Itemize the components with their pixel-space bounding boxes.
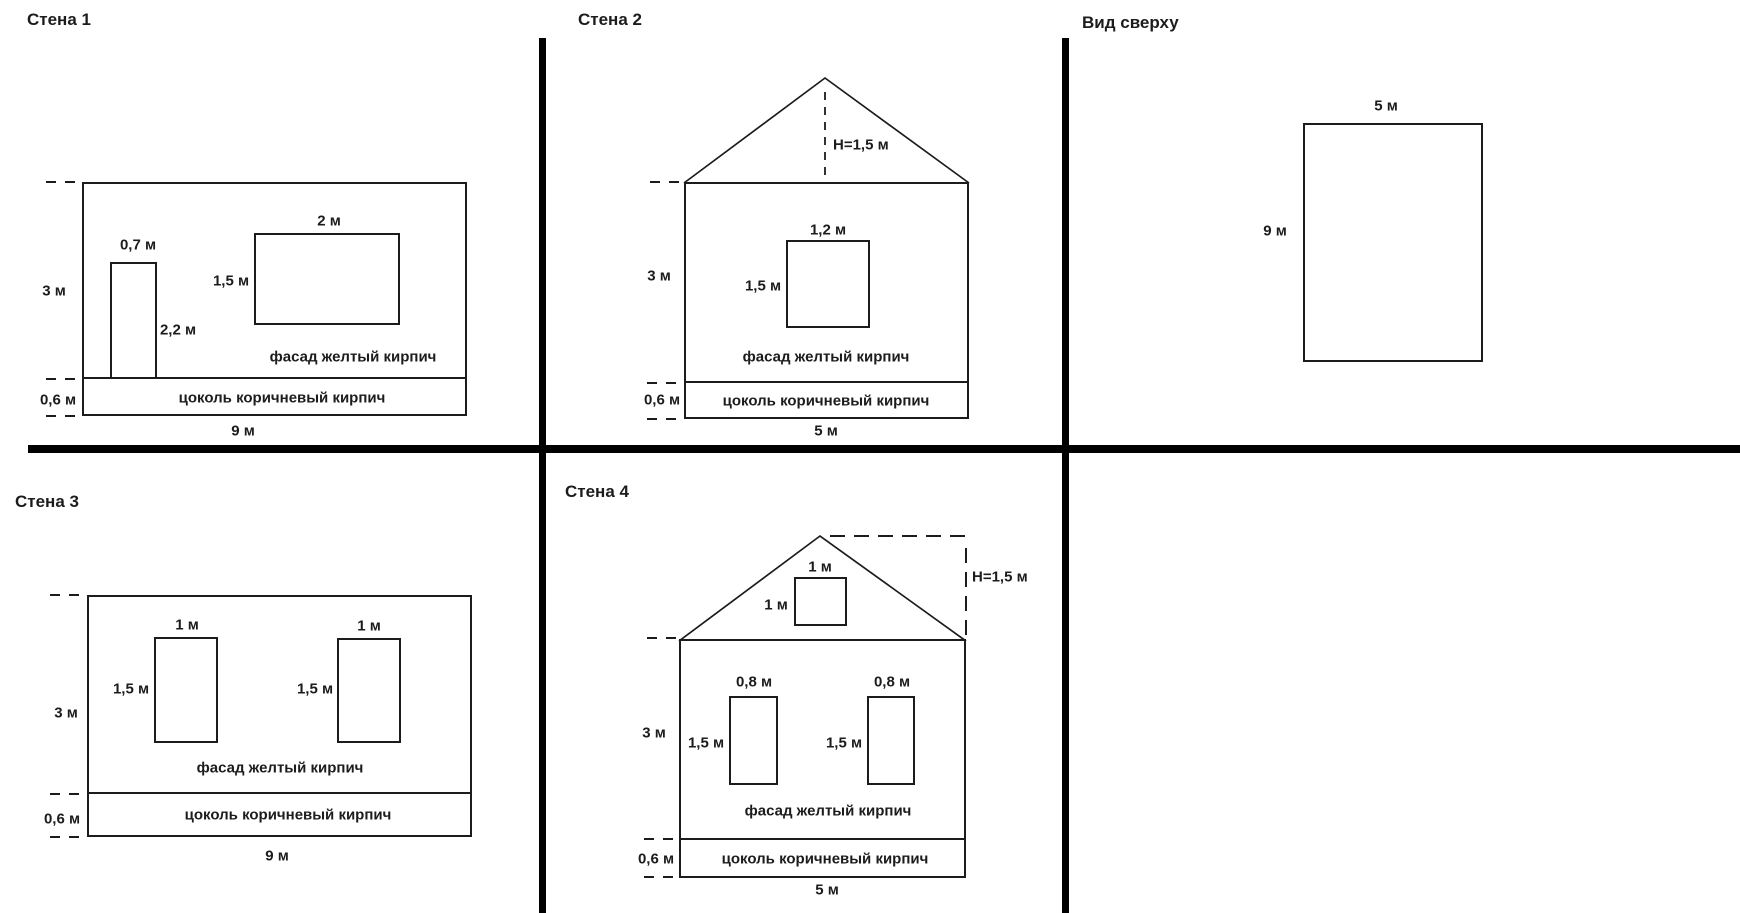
wall3-dim-window2-height: 1,5 м — [297, 682, 333, 697]
wall4-attic-window-rect — [794, 577, 847, 626]
drawing-canvas: Стена 1 3 м 0,7 м 2,2 м 2 м 1,5 м фасад … — [0, 0, 1740, 913]
wall2-facade-material-label: фасад желтый кирпич — [743, 350, 910, 365]
wall2-dim-plinth-height: 0,6 м — [644, 393, 680, 408]
wall3-dim-wall-width: 9 м — [265, 849, 289, 864]
wall3-title: Стена 3 — [15, 493, 79, 510]
wall4-window1-rect — [729, 696, 778, 785]
wall1-facade-material-label: фасад желтый кирпич — [270, 350, 437, 365]
wall2-dim-roof-height: Н=1,5 м — [833, 138, 889, 153]
wall2-dim-wall-height: 3 м — [647, 269, 671, 284]
wall4-title: Стена 4 — [565, 483, 629, 500]
wall1-dim-plinth-height: 0,6 м — [40, 393, 76, 408]
wall2-plinth-material-label: цоколь коричневый кирпич — [723, 394, 930, 409]
wall3-dim-wall-height: 3 м — [54, 706, 78, 721]
wall3-dim-window1-width: 1 м — [175, 618, 199, 633]
wall4-dim-window1-width: 0,8 м — [736, 675, 772, 690]
wall2-window-rect — [786, 240, 870, 328]
wall3-window2-rect — [337, 638, 401, 743]
wall4-dim-attic-window-height: 1 м — [764, 598, 788, 613]
wall2-dim-window-width: 1,2 м — [810, 223, 846, 238]
wall4-facade-material-label: фасад желтый кирпич — [745, 804, 912, 819]
wall4-plinth-material-label: цоколь коричневый кирпич — [722, 852, 929, 867]
wall1-dim-window-width: 2 м — [317, 214, 341, 229]
wall1-plinth-material-label: цоколь коричневый кирпич — [179, 391, 386, 406]
divider-vertical-2 — [1062, 38, 1069, 913]
wall1-door-rect — [110, 262, 157, 379]
wall1-dim-door-width: 0,7 м — [120, 238, 156, 253]
wall4-dim-roof-height: Н=1,5 м — [972, 570, 1028, 585]
wall4-window2-rect — [867, 696, 915, 785]
top-view-dim-width: 5 м — [1374, 99, 1398, 114]
wall3-dim-plinth-height: 0,6 м — [44, 812, 80, 827]
wall4-dim-window2-width: 0,8 м — [874, 675, 910, 690]
top-view-dim-depth: 9 м — [1263, 224, 1287, 239]
wall1-window-rect — [254, 233, 400, 325]
wall1-dim-wall-height: 3 м — [42, 284, 66, 299]
wall2-dim-window-height: 1,5 м — [745, 279, 781, 294]
divider-vertical-1 — [539, 38, 546, 913]
wall4-dim-window1-height: 1,5 м — [688, 736, 724, 751]
wall2-dim-wall-width: 5 м — [814, 424, 838, 439]
wall4-dim-plinth-height: 0,6 м — [638, 852, 674, 867]
wall1-title: Стена 1 — [27, 11, 91, 28]
wall1-dim-window-height: 1,5 м — [213, 274, 249, 289]
top-view-title: Вид сверху — [1082, 14, 1179, 31]
wall4-dim-wall-width: 5 м — [815, 883, 839, 898]
top-view-plan-rect — [1303, 123, 1483, 362]
wall4-dim-wall-height: 3 м — [642, 726, 666, 741]
wall3-dim-window1-height: 1,5 м — [113, 682, 149, 697]
wall4-dim-attic-window-width: 1 м — [808, 560, 832, 575]
wall1-dim-wall-width: 9 м — [231, 424, 255, 439]
divider-horizontal — [28, 445, 1740, 453]
wall2-title: Стена 2 — [578, 11, 642, 28]
wall1-dim-door-height: 2,2 м — [160, 323, 196, 338]
wall3-plinth-material-label: цоколь коричневый кирпич — [185, 808, 392, 823]
wall2-roof-line — [684, 78, 969, 183]
wall3-window1-rect — [154, 637, 218, 743]
wall4-dim-window2-height: 1,5 м — [826, 736, 862, 751]
wall3-facade-material-label: фасад желтый кирпич — [197, 761, 364, 776]
wall3-dim-window2-width: 1 м — [357, 619, 381, 634]
